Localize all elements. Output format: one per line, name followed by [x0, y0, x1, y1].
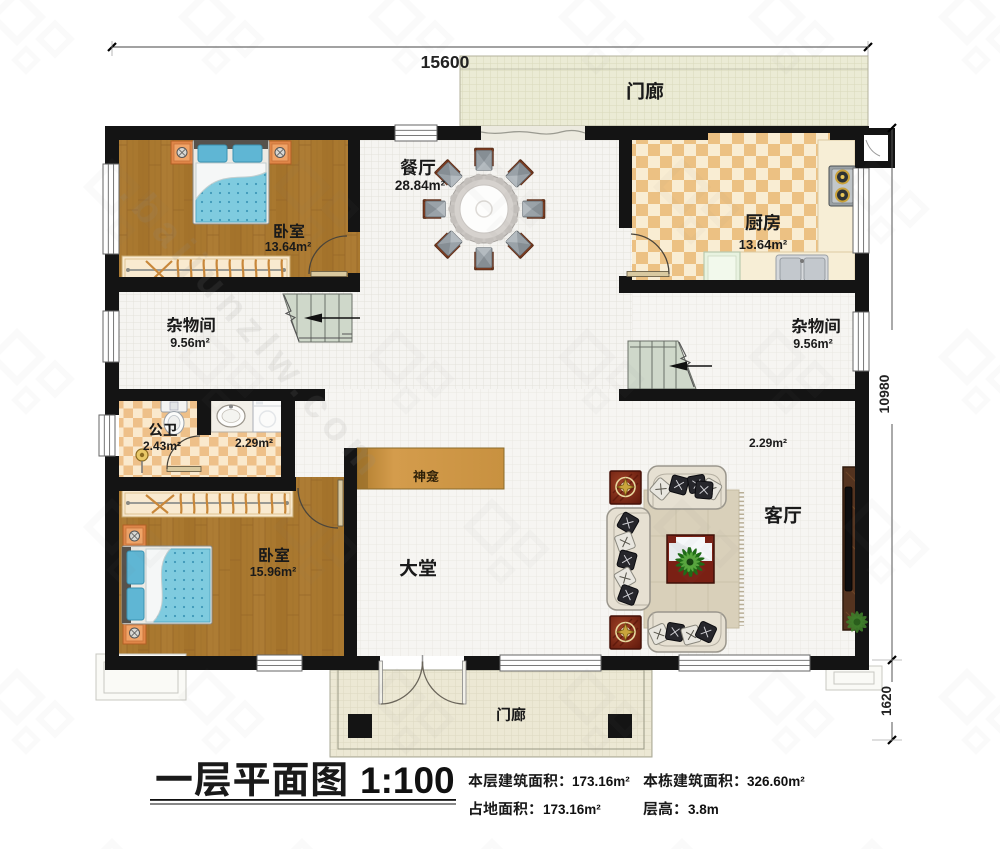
svg-text:9.56m²: 9.56m²	[793, 337, 833, 351]
svg-text:13.64m²: 13.64m²	[739, 237, 788, 252]
svg-text:10980: 10980	[876, 374, 892, 413]
svg-text:173.16m²: 173.16m²	[572, 774, 630, 789]
svg-text:28.84m²: 28.84m²	[395, 178, 446, 193]
svg-text:326.60m²: 326.60m²	[747, 774, 805, 789]
svg-text:173.16m²: 173.16m²	[543, 802, 601, 817]
svg-text:2.29m²: 2.29m²	[235, 436, 273, 450]
svg-text:2.29m²: 2.29m²	[749, 436, 787, 450]
svg-text:3.8m: 3.8m	[688, 802, 719, 817]
svg-text:15.96m²: 15.96m²	[250, 565, 297, 579]
svg-text:15600: 15600	[421, 52, 470, 72]
svg-text:13.64m²: 13.64m²	[265, 240, 312, 254]
svg-text:1620: 1620	[879, 686, 894, 716]
svg-text:2.43m²: 2.43m²	[143, 439, 181, 453]
svg-text:1:100: 1:100	[360, 760, 455, 801]
